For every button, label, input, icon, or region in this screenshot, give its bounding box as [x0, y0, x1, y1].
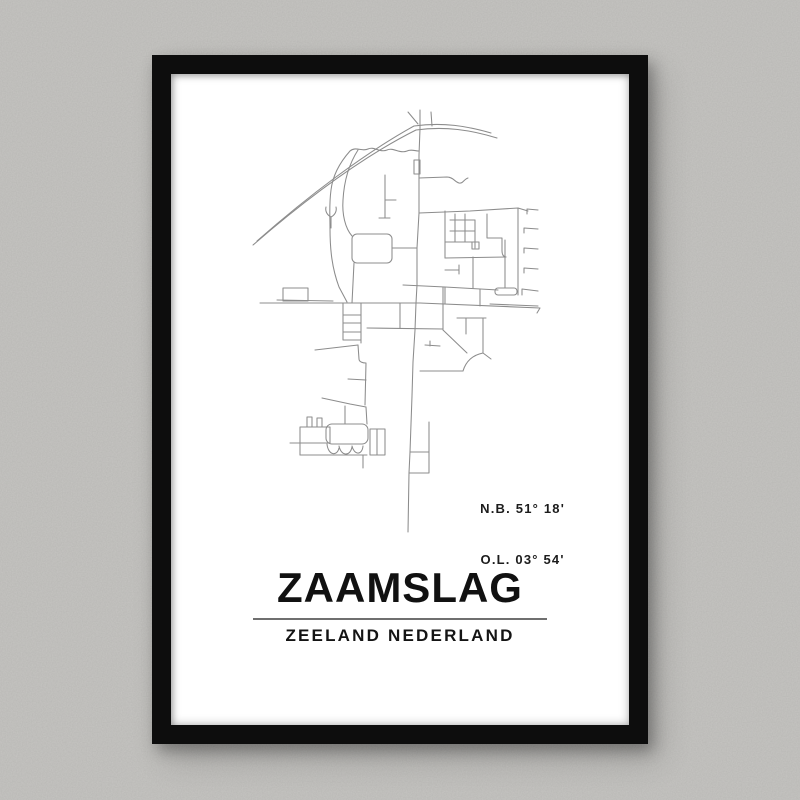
map-road	[343, 303, 361, 343]
title-block: ZAAMSLAG ZEELAND NEDERLAND	[171, 565, 629, 646]
map-road	[524, 228, 538, 233]
map-road	[495, 288, 517, 295]
map-road	[425, 341, 440, 346]
map-road	[527, 209, 538, 214]
map-road	[524, 248, 538, 253]
map-road	[358, 345, 366, 405]
map-road	[457, 318, 486, 334]
map-road	[483, 318, 491, 359]
map-road	[379, 175, 396, 218]
poster-subtitle: ZEELAND NEDERLAND	[171, 626, 629, 646]
map-road	[443, 330, 467, 353]
map-road	[408, 112, 418, 124]
map-road	[409, 422, 429, 473]
picture-frame: N.B. 51° 18' O.L. 03° 54' ZAAMSLAG ZEELA…	[152, 55, 648, 744]
wall: { "poster": { "title": "ZAAMSLAG", "subt…	[0, 0, 800, 800]
poster-title: ZAAMSLAG	[171, 565, 629, 611]
map-road	[370, 429, 385, 455]
map-road	[257, 124, 491, 241]
map-road	[445, 265, 459, 274]
map-road	[463, 353, 483, 371]
map-road	[307, 417, 322, 427]
map-road	[367, 328, 443, 329]
map-road	[419, 177, 468, 183]
map-road	[290, 427, 330, 455]
map-road	[283, 288, 308, 301]
latitude-label: N.B. 51° 18'	[480, 500, 565, 517]
map-road	[524, 268, 538, 273]
map-road	[326, 424, 368, 444]
map-road	[419, 208, 528, 213]
map-road	[253, 128, 497, 245]
map-road	[352, 234, 392, 263]
map-road	[522, 289, 538, 295]
map-road	[326, 207, 337, 228]
title-divider	[253, 618, 547, 620]
map-road	[327, 444, 363, 454]
map-road	[366, 407, 367, 424]
map-road	[315, 345, 358, 350]
map-poster: N.B. 51° 18' O.L. 03° 54' ZAAMSLAG ZEELA…	[171, 74, 629, 725]
map-road	[350, 148, 419, 152]
map-road	[348, 379, 366, 380]
map-road	[352, 263, 354, 303]
map-road	[445, 257, 506, 258]
map-road	[431, 112, 432, 126]
map-road	[322, 398, 366, 407]
map-road	[487, 214, 506, 257]
